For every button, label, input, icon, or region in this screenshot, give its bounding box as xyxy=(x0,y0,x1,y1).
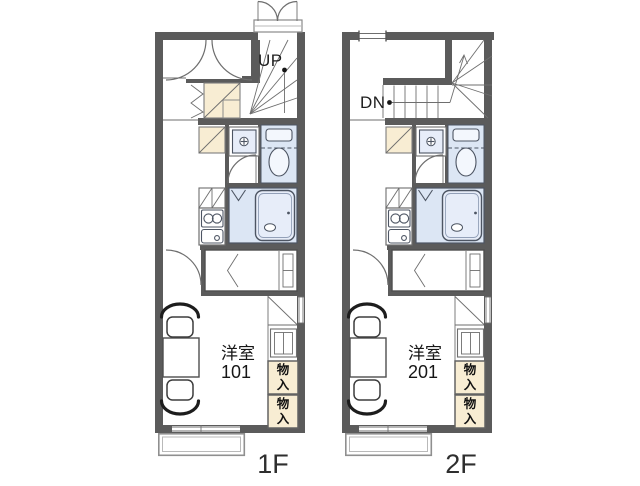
dn-marker-dot xyxy=(387,100,392,105)
entrance-doors xyxy=(258,2,297,22)
chair-top xyxy=(162,304,199,337)
sink xyxy=(202,230,224,244)
top-window xyxy=(359,31,386,42)
balcony xyxy=(159,434,245,456)
room-101-label: 洋室 101 xyxy=(221,344,255,382)
floorplan-drawing xyxy=(0,0,640,486)
floor2-label: 2F xyxy=(429,449,493,480)
hall-closet xyxy=(191,83,240,118)
bed xyxy=(205,250,297,291)
bathroom xyxy=(229,188,297,243)
bifold-door xyxy=(191,85,203,118)
drain xyxy=(265,224,276,232)
washroom-closet xyxy=(199,127,225,153)
room-201-label: 洋室 201 xyxy=(408,344,442,382)
floorplan: UP DN 洋室 101 洋室 201 物入 物入 物入 物入 1F 2F xyxy=(0,0,640,486)
storage-label-2f-a: 物入 xyxy=(455,361,485,394)
desk xyxy=(163,338,199,377)
balcony-window xyxy=(172,425,240,433)
room-101-name: 洋室 xyxy=(221,344,255,363)
storage-label-2f-b: 物入 xyxy=(455,395,485,428)
bedroom-door xyxy=(166,250,201,285)
up-marker-dot xyxy=(282,68,287,73)
dn-label: DN xyxy=(360,93,386,113)
room-101-number: 101 xyxy=(221,363,255,382)
chair-bottom xyxy=(162,380,199,414)
up-label: UP xyxy=(258,51,283,71)
corner-closet xyxy=(268,297,297,325)
washroom-door xyxy=(228,155,256,183)
room-201-number: 201 xyxy=(408,363,442,382)
washing-machine xyxy=(229,127,259,156)
floor1-label: 1F xyxy=(241,449,305,480)
storage-label-1f-a: 物入 xyxy=(268,361,298,394)
entrance-porch xyxy=(254,20,302,32)
room-201-name: 洋室 xyxy=(408,344,442,363)
hall-doors xyxy=(163,40,252,80)
storage-label-1f-b: 物入 xyxy=(268,395,298,428)
bathtub xyxy=(256,191,295,241)
kitchen xyxy=(199,208,225,245)
kitchen-closet xyxy=(199,188,225,208)
cabinet xyxy=(271,329,297,357)
side-window xyxy=(298,297,304,323)
toilet xyxy=(261,125,297,183)
